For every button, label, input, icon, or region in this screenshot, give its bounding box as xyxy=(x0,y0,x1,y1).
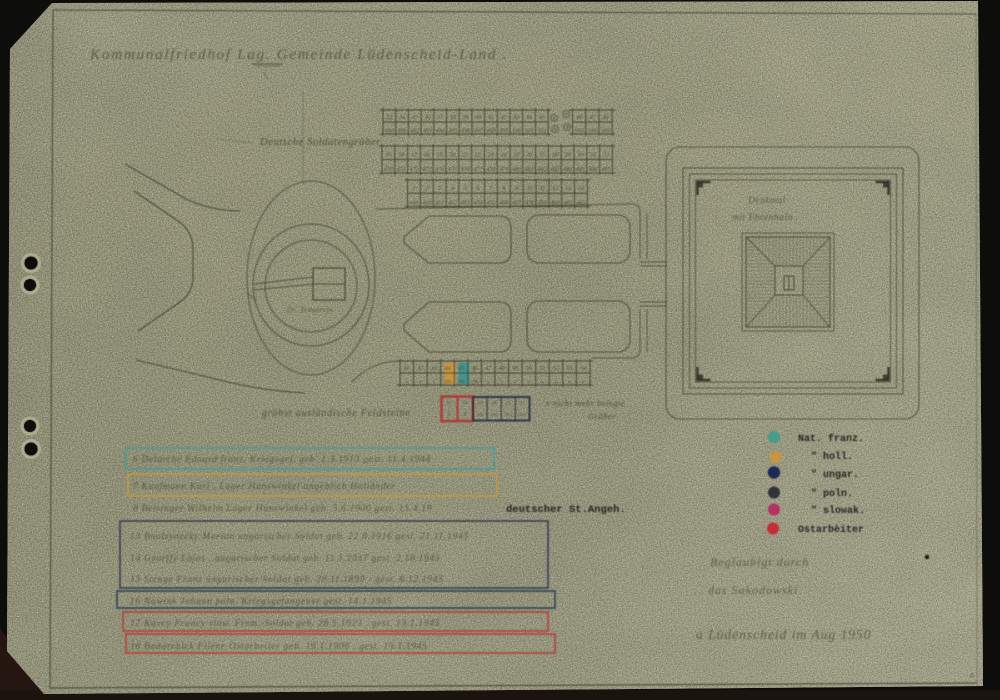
svg-text:16 Nowink Johann poln. Krie: 16 Nowink Johann poln. Kriegsgefangener … xyxy=(130,596,392,607)
svg-text:42: 42 xyxy=(501,114,507,121)
svg-text:31: 31 xyxy=(589,152,596,158)
svg-text:487: 487 xyxy=(602,166,612,173)
svg-text:47: 47 xyxy=(485,365,492,372)
svg-text:43: 43 xyxy=(513,114,519,121)
svg-text:19: 19 xyxy=(437,152,443,158)
svg-text:32: 32 xyxy=(602,152,609,158)
svg-text:7 Kaufmann Karl , Lager Hun: 7 Kaufmann Karl , Lager Hunswinkel angeb… xyxy=(133,481,396,492)
svg-text:503: 503 xyxy=(575,128,584,134)
svg-text:495: 495 xyxy=(448,127,457,134)
svg-text:473: 473 xyxy=(422,166,431,173)
svg-text:42: 42 xyxy=(417,365,423,372)
svg-text:46: 46 xyxy=(472,365,478,372)
svg-text:475: 475 xyxy=(448,166,457,173)
svg-text:53: 53 xyxy=(567,366,573,372)
svg-text:13 Bnolzynecky Marian ungar: 13 Bnolzynecky Marian ungarischer Soldat… xyxy=(130,532,469,542)
svg-text:471: 471 xyxy=(397,166,406,173)
svg-text:48: 48 xyxy=(603,114,609,121)
svg-text:Deutsche Soldatengräber: Deutsche Soldatengräber xyxy=(259,137,381,148)
svg-text:deutscher St.Angeh.: deutscher St.Angeh. xyxy=(506,504,626,516)
svg-text:450: 450 xyxy=(422,200,431,207)
svg-text:1: 1 xyxy=(412,186,415,192)
svg-text:2: 2 xyxy=(425,186,428,192)
svg-text:44: 44 xyxy=(444,365,450,372)
svg-text:27: 27 xyxy=(539,152,546,158)
svg-text:496: 496 xyxy=(461,127,470,134)
svg-text:485: 485 xyxy=(576,166,585,173)
svg-text:18 Bodarchick Filene Ostarbe: 18 Bodarchick Filene Ostarbeiter geb. 19… xyxy=(130,642,428,652)
svg-text:das Sakodowski: das Sakodowski xyxy=(708,583,798,597)
svg-text:492: 492 xyxy=(410,127,419,134)
svg-text:14: 14 xyxy=(578,185,584,192)
svg-text:484: 484 xyxy=(563,166,572,173)
svg-text:480: 480 xyxy=(512,166,521,173)
svg-text:15: 15 xyxy=(447,401,453,406)
svg-text:40: 40 xyxy=(475,114,481,121)
svg-text:43: 43 xyxy=(431,365,437,372)
svg-text:502: 502 xyxy=(537,128,546,134)
svg-text:582: 582 xyxy=(505,412,513,417)
svg-text:493: 493 xyxy=(423,127,432,134)
svg-text:290: 290 xyxy=(444,380,452,385)
svg-text:22: 22 xyxy=(520,402,526,407)
svg-text:24: 24 xyxy=(501,151,507,158)
svg-text:" ungar.: " ungar. xyxy=(811,469,859,481)
svg-text:41: 41 xyxy=(404,365,410,372)
svg-text:19: 19 xyxy=(478,402,484,407)
svg-text:a Lüdenscheid im Aug 1950: a Lüdenscheid im Aug 1950 xyxy=(696,627,872,642)
svg-text:37: 37 xyxy=(436,115,444,121)
svg-text:39: 39 xyxy=(462,115,469,121)
svg-text:451: 451 xyxy=(435,200,444,207)
svg-text:8 Beisinger Wilhelm Lager H: 8 Beisinger Wilhelm Lager Hunswinkel geb… xyxy=(133,504,432,514)
svg-text:11: 11 xyxy=(540,186,546,192)
svg-text:46: 46 xyxy=(576,114,582,121)
svg-text:44: 44 xyxy=(526,114,532,121)
svg-text:486: 486 xyxy=(589,166,598,173)
svg-text:17 Kavcy Franey slow. Frem.-: 17 Kavcy Franey slow. Frem.-Soldat geb. … xyxy=(130,619,440,629)
svg-text:482: 482 xyxy=(538,166,547,173)
svg-text:580: 580 xyxy=(491,412,499,417)
svg-text:51: 51 xyxy=(539,366,545,372)
svg-text:33: 33 xyxy=(385,115,392,121)
svg-text:23: 23 xyxy=(488,152,494,158)
svg-text:41: 41 xyxy=(488,114,494,121)
svg-text:6: 6 xyxy=(477,186,480,192)
svg-text:36: 36 xyxy=(423,115,430,121)
svg-text:453: 453 xyxy=(461,200,470,207)
svg-text:478: 478 xyxy=(486,166,495,173)
svg-text:Nat. franz.: Nat. franz. xyxy=(798,433,864,445)
svg-text:48: 48 xyxy=(499,365,505,372)
svg-text:10: 10 xyxy=(527,186,533,192)
svg-text:28: 28 xyxy=(552,152,558,158)
svg-text:476: 476 xyxy=(461,166,470,173)
svg-text:584: 584 xyxy=(519,412,527,417)
svg-text:12: 12 xyxy=(552,186,558,192)
svg-text:20: 20 xyxy=(449,152,455,158)
svg-text:26: 26 xyxy=(526,152,532,158)
svg-text:50: 50 xyxy=(526,366,532,372)
svg-text:35: 35 xyxy=(411,115,418,121)
svg-text:18: 18 xyxy=(424,152,430,158)
svg-text:472: 472 xyxy=(410,166,419,173)
svg-text:294: 294 xyxy=(457,380,465,385)
svg-text:462: 462 xyxy=(576,200,585,207)
svg-text:gröbst ausländische Feldsteine: gröbst ausländische Feldsteine xyxy=(262,408,410,419)
svg-text:449: 449 xyxy=(409,200,418,207)
svg-text:3: 3 xyxy=(437,186,441,192)
svg-text:Dr. Trauterjo: Dr. Trauterjo xyxy=(286,305,333,314)
svg-text:481: 481 xyxy=(525,166,534,173)
svg-text:452: 452 xyxy=(448,200,457,207)
svg-text:470: 470 xyxy=(384,166,393,173)
svg-text:686: 686 xyxy=(477,412,485,417)
svg-text:474: 474 xyxy=(435,166,444,173)
svg-text:Kommunalfriedhof Lag. Gemein: Kommunalfriedhof Lag. Gemeinde Lüdensche… xyxy=(89,47,508,63)
svg-text:501: 501 xyxy=(525,128,534,134)
svg-text:8: 8 xyxy=(502,186,505,192)
svg-text:49: 49 xyxy=(512,365,518,372)
svg-text:54: 54 xyxy=(580,365,586,372)
svg-text:4: 4 xyxy=(451,185,454,192)
svg-text:Denkmal: Denkmal xyxy=(747,196,786,206)
svg-text:20: 20 xyxy=(492,402,498,407)
svg-text:21: 21 xyxy=(462,152,468,158)
svg-text:455: 455 xyxy=(487,200,496,207)
svg-text:45: 45 xyxy=(539,114,545,121)
svg-text:Ostarbèiter: Ostarbèiter xyxy=(798,524,864,536)
svg-text:9: 9 xyxy=(515,186,518,192)
svg-text:21: 21 xyxy=(506,402,511,407)
svg-text:45: 45 xyxy=(458,365,464,372)
svg-text:25: 25 xyxy=(513,152,519,158)
svg-text:14 Gyorffy Lajos , ungarisch: 14 Gyorffy Lajos , ungarischer Soldat ge… xyxy=(130,553,440,564)
svg-text:500: 500 xyxy=(512,128,521,134)
svg-text:504: 504 xyxy=(588,127,597,134)
svg-text:15: 15 xyxy=(385,152,391,158)
svg-text:497: 497 xyxy=(474,127,484,134)
svg-text:16: 16 xyxy=(398,152,404,158)
svg-text:h: h xyxy=(970,671,975,680)
svg-text:mit Ehrenhain .: mit Ehrenhain . xyxy=(732,213,799,223)
svg-text:13: 13 xyxy=(565,186,571,192)
svg-text:479: 479 xyxy=(499,166,508,173)
svg-text:6 Delarche Eduard franz.: 6 Delarche Eduard franz. Kriegsgef. geb.… xyxy=(133,454,431,465)
svg-text:29: 29 xyxy=(565,152,571,158)
svg-text:298: 298 xyxy=(471,380,479,385)
svg-text:38: 38 xyxy=(449,115,456,121)
svg-text:477: 477 xyxy=(474,166,484,173)
svg-text:22: 22 xyxy=(475,152,481,158)
svg-text:456: 456 xyxy=(499,200,508,207)
svg-text:483: 483 xyxy=(550,166,559,173)
svg-text:491: 491 xyxy=(398,127,407,134)
svg-text:457: 457 xyxy=(512,200,522,207)
svg-text:47: 47 xyxy=(589,114,596,121)
svg-text:17: 17 xyxy=(411,152,418,158)
svg-text:505: 505 xyxy=(601,128,610,134)
svg-text:5: 5 xyxy=(464,186,467,192)
svg-text:34: 34 xyxy=(398,114,405,121)
svg-text:454: 454 xyxy=(474,200,483,207)
svg-text:499: 499 xyxy=(499,127,508,134)
svg-text:Gräber: Gräber xyxy=(588,411,616,421)
svg-text:" poln.: " poln. xyxy=(811,488,853,500)
svg-text:15 Stenge Franz ungarischer: 15 Stenge Franz ungarischer Soldat geb. … xyxy=(130,575,444,585)
svg-text:30: 30 xyxy=(576,152,583,158)
svg-text:" slowak.: " slowak. xyxy=(811,505,865,517)
svg-text:x nicht mehr belegte: x nicht mehr belegte xyxy=(545,398,625,408)
svg-text:494: 494 xyxy=(436,127,445,134)
svg-text:Beglaubigt durch: Beglaubigt durch xyxy=(710,555,809,569)
svg-text:490: 490 xyxy=(385,127,394,134)
svg-text:16: 16 xyxy=(463,401,469,406)
svg-text:" holl.: " holl. xyxy=(811,451,853,463)
svg-text:52: 52 xyxy=(553,366,559,372)
svg-text:498: 498 xyxy=(486,127,495,134)
